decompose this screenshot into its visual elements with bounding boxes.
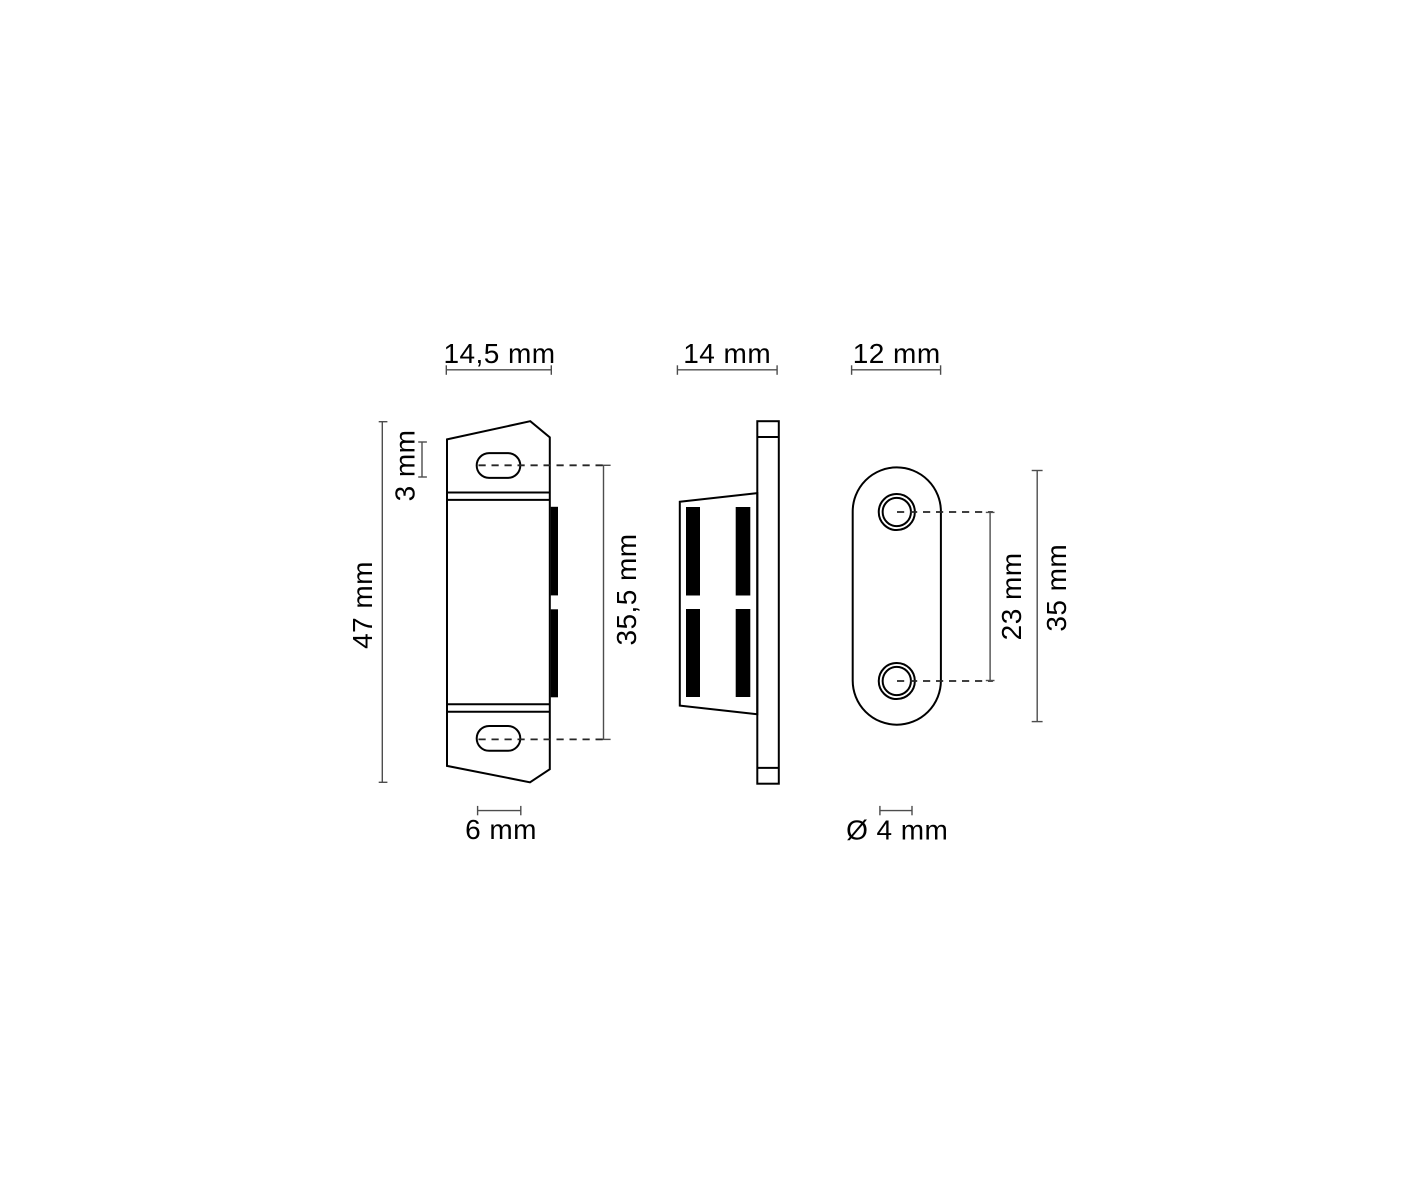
svg-text:12 mm: 12 mm <box>853 338 941 369</box>
svg-text:47 mm: 47 mm <box>347 561 378 649</box>
svg-text:14 mm: 14 mm <box>683 338 771 369</box>
svg-text:35 mm: 35 mm <box>1041 544 1072 632</box>
svg-text:Ø 4 mm: Ø 4 mm <box>846 814 948 845</box>
svg-text:23 mm: 23 mm <box>996 552 1027 640</box>
svg-text:35,5 mm: 35,5 mm <box>611 533 642 645</box>
svg-text:3 mm: 3 mm <box>389 430 420 502</box>
svg-text:6 mm: 6 mm <box>465 814 537 845</box>
svg-text:14,5 mm: 14,5 mm <box>443 338 555 369</box>
